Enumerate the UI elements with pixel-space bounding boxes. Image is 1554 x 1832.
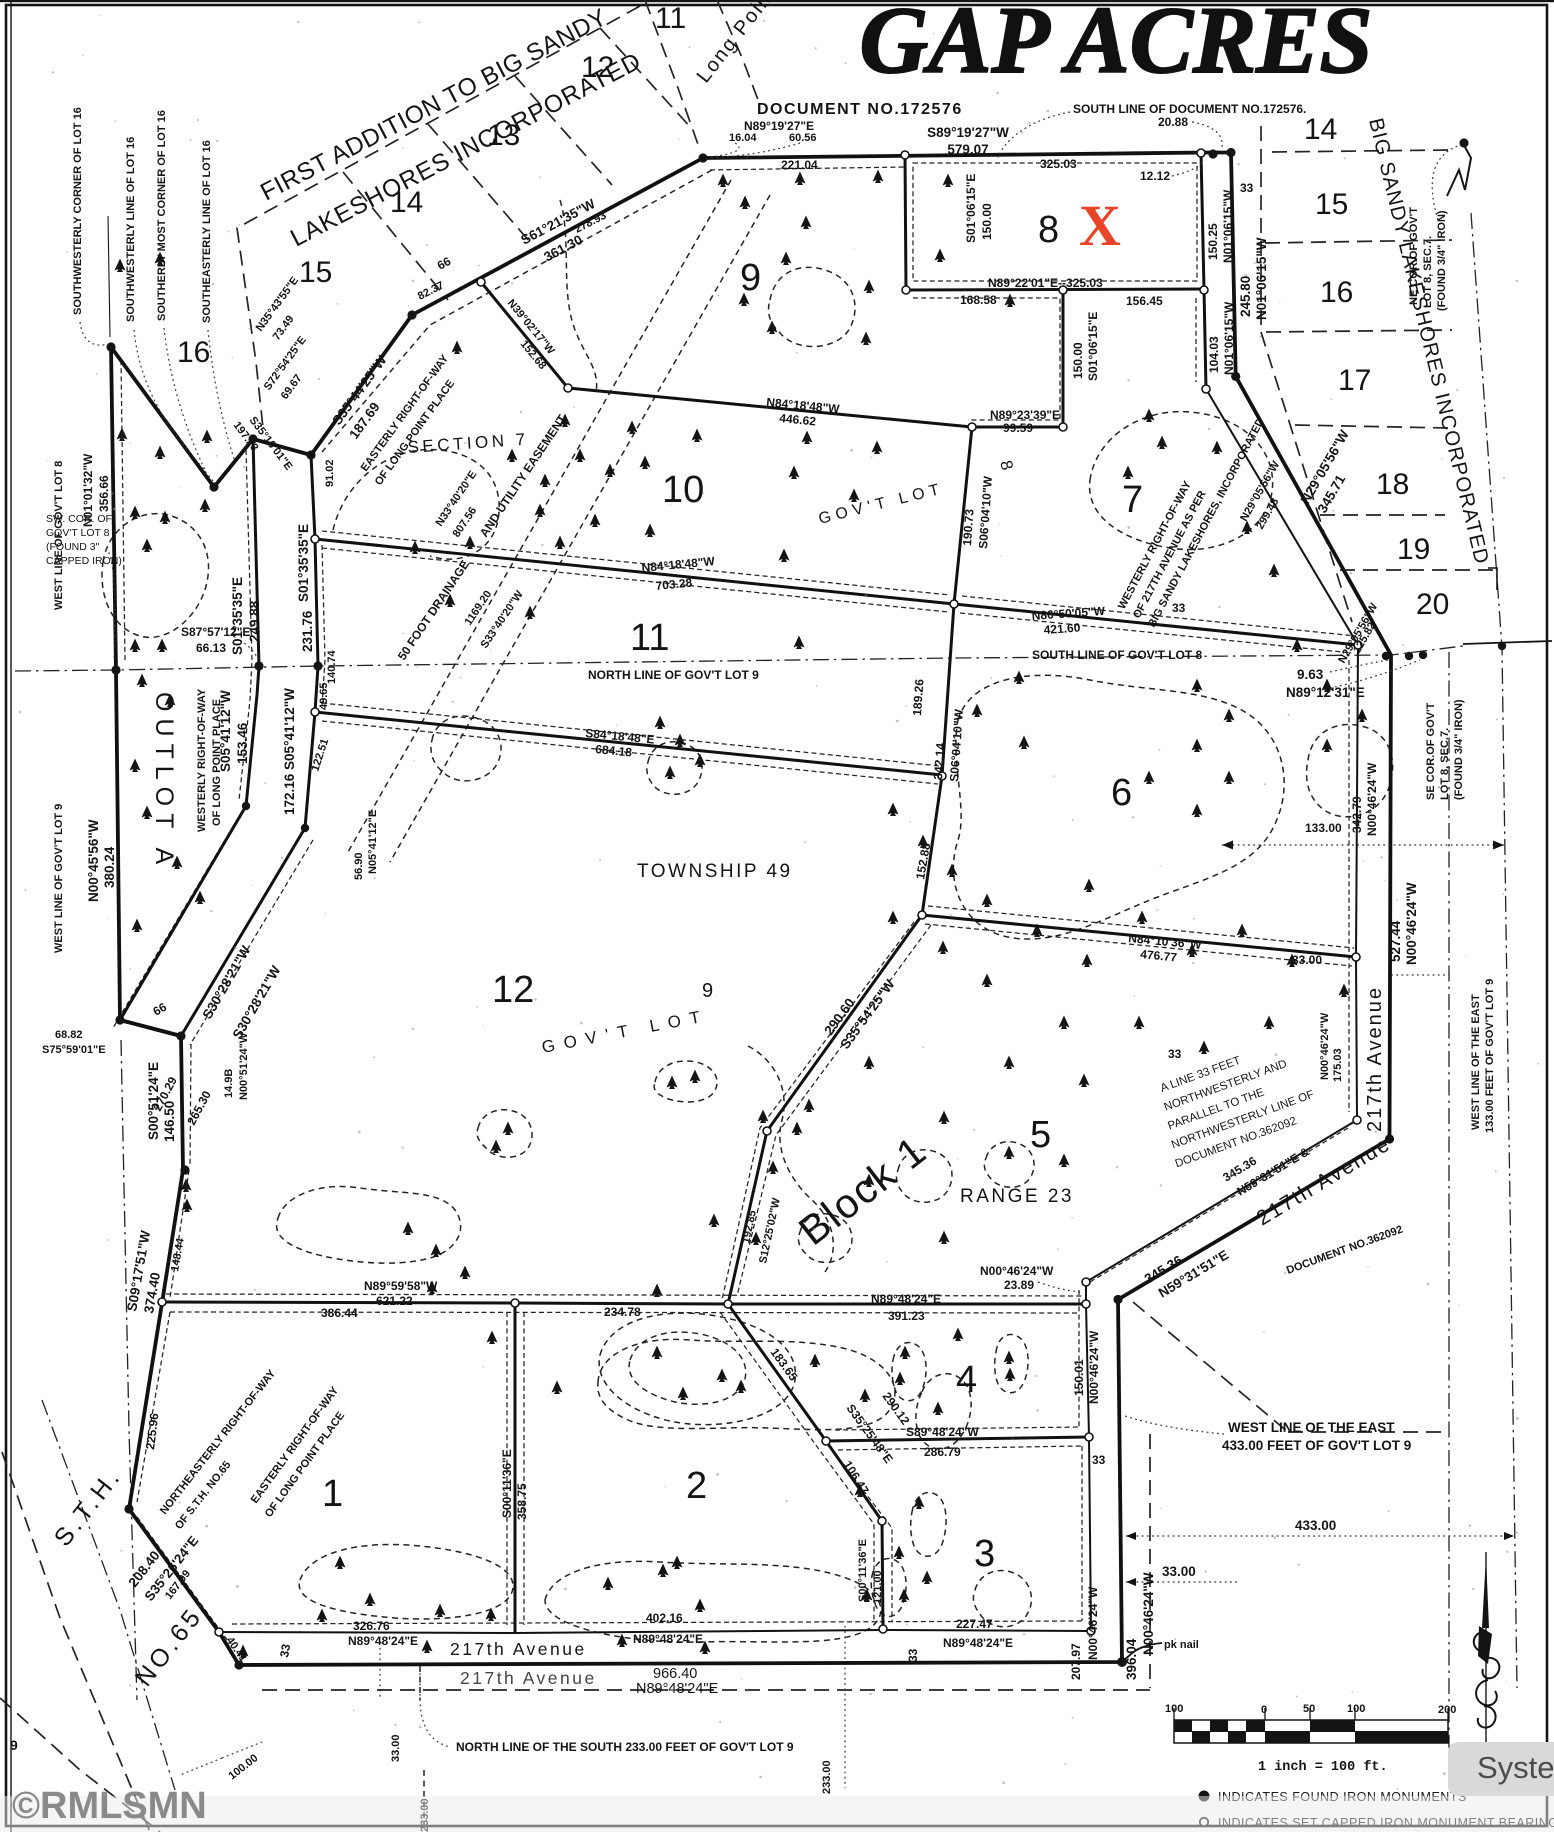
svg-text:146.50: 146.50 [162,1101,177,1142]
svg-text:150.00: 150.00 [1071,342,1085,379]
svg-text:233.00: 233.00 [821,1760,833,1794]
svg-text:9: 9 [10,1737,18,1753]
svg-text:SOUTHWESTERLY LINE OF LOT: SOUTHWESTERLY LINE OF LOT 16 [125,137,137,322]
svg-text:60.56: 60.56 [789,132,817,144]
svg-text:380.24: 380.24 [102,846,117,888]
svg-text:1 inch = 100 ft.: 1 inch = 100 ft. [1258,1760,1388,1775]
svg-text:RANGE 23: RANGE 23 [960,1186,1074,1207]
svg-text:175.03: 175.03 [1332,1048,1344,1082]
svg-text:10: 10 [662,469,704,511]
svg-text:217th Avenue: 217th Avenue [460,1668,597,1688]
svg-text:N89°19'27"E: N89°19'27"E [744,119,814,133]
svg-text:245.80: 245.80 [1238,276,1253,317]
svg-text:N00°46'24"W: N00°46'24"W [1319,1012,1331,1080]
svg-text:133.00 FEET OF GOV'T LOT: 133.00 FEET OF GOV'T LOT 9 [1484,979,1496,1133]
svg-text:WEST LINE OF GOV'T LOT 9: WEST LINE OF GOV'T LOT 9 [53,804,65,953]
svg-text:33: 33 [1092,1453,1106,1467]
svg-text:421.60: 421.60 [1043,620,1081,637]
svg-text:153.46: 153.46 [235,722,250,764]
svg-text:16.04: 16.04 [729,132,757,144]
svg-text:150.25: 150.25 [1206,223,1220,260]
svg-text:56.90: 56.90 [353,852,365,880]
svg-text:N01°06'15"W: N01°06'15"W [1254,237,1269,320]
svg-text:402.16: 402.16 [646,1611,683,1625]
svg-text:14: 14 [390,186,423,219]
svg-text:S01°35'35"E: S01°35'35"E [230,577,245,655]
svg-text:91.02: 91.02 [324,459,336,487]
svg-text:S05°41'12"W: S05°41'12"W [218,690,233,772]
svg-text:N89°48'24"E: N89°48'24"E [943,1636,1013,1650]
svg-text:150.01: 150.01 [1072,1359,1086,1396]
svg-text:23.89: 23.89 [1004,1278,1034,1292]
svg-text:49.65: 49.65 [318,682,330,710]
svg-text:7: 7 [1122,479,1143,521]
svg-text:S00°11'36"E: S00°11'36"E [857,1539,869,1602]
svg-text:SOUTHWESTERLY CORNER OF LOT: SOUTHWESTERLY CORNER OF LOT 16 [72,107,84,315]
svg-text:342.14: 342.14 [931,742,948,780]
svg-text:TOWNSHIP 49: TOWNSHIP 49 [637,861,793,882]
svg-text:33: 33 [277,1643,293,1659]
svg-text:N01°06'15"W: N01°06'15"W [1222,301,1236,375]
svg-text:GAP ACRES: GAP ACRES [860,0,1373,93]
svg-text:WEST LINE OF THE EAST: WEST LINE OF THE EAST [1228,1420,1395,1435]
svg-text:11: 11 [630,617,669,659]
svg-text:N89°48'24"E: N89°48'24"E [633,1632,703,1646]
svg-text:SOUTHERLY MOST CORNER OF L: SOUTHERLY MOST CORNER OF LOT 16 [156,110,168,321]
svg-text:133.00: 133.00 [1305,821,1342,835]
svg-text:189.26: 189.26 [910,678,927,716]
svg-text:6: 6 [1111,772,1132,814]
svg-text:2: 2 [686,1465,707,1507]
svg-text:20: 20 [1416,588,1449,621]
svg-text:326.76: 326.76 [353,1619,390,1633]
svg-text:217th Avenue: 217th Avenue [450,1639,587,1659]
svg-text:20.88: 20.88 [1158,115,1188,129]
svg-text:9: 9 [702,980,713,1002]
svg-text:S01°35'35"E: S01°35'35"E [296,524,311,602]
svg-text:19: 19 [1397,533,1430,566]
svg-text:N00°46'24"W: N00°46'24"W [1365,762,1379,836]
svg-text:286.79: 286.79 [924,1445,961,1459]
svg-text:17: 17 [1338,364,1371,397]
svg-text:33: 33 [1172,601,1186,615]
svg-text:12: 12 [492,969,534,1011]
svg-text:N89°59'58"W: N89°59'58"W [364,1279,438,1293]
svg-text:(FOUND 3": (FOUND 3" [46,541,100,553]
svg-text:4: 4 [956,1359,977,1401]
svg-text:33.00: 33.00 [1292,953,1322,967]
svg-text:391.23: 391.23 [888,1309,925,1323]
svg-text:SE COR.OF GOV'T: SE COR.OF GOV'T [1425,702,1437,800]
svg-text:358.75: 358.75 [515,1483,529,1520]
svg-text:SOUTHEASTERLY LINE OF LOT: SOUTHEASTERLY LINE OF LOT 16 [201,140,213,323]
svg-text:172.16 S05°41'12"W: 172.16 S05°41'12"W [282,688,297,815]
svg-text:227.47: 227.47 [956,1617,993,1631]
svg-text:LOT 8, SEC.7.: LOT 8, SEC.7. [1422,236,1434,308]
svg-text:CAPPED IRON): CAPPED IRON) [46,555,122,567]
svg-text:200: 200 [1438,1704,1456,1716]
svg-text:342.79: 342.79 [1350,796,1364,833]
svg-text:621.22: 621.22 [376,1294,413,1308]
svg-text:234.78: 234.78 [604,1305,641,1319]
svg-text:579.07: 579.07 [947,142,988,157]
svg-text:433.00: 433.00 [1295,1518,1336,1533]
svg-text:N00°46'24"W: N00°46'24"W [1141,1572,1156,1655]
svg-text:33: 33 [1240,181,1254,195]
svg-text:150.00: 150.00 [980,203,994,240]
svg-text:207.97: 207.97 [1069,1643,1083,1680]
svg-text:S01°06'15"E: S01°06'15"E [964,174,978,243]
svg-text:16: 16 [1320,276,1353,309]
svg-text:System: System [1477,1750,1554,1785]
svg-text:N00°46'24"W: N00°46'24"W [1404,882,1419,965]
svg-text:68.82: 68.82 [55,1029,83,1041]
svg-text:33: 33 [906,1648,920,1662]
svg-text:N00°45'56"W: N00°45'56"W [86,819,101,902]
svg-text:S00°51'24"E: S00°51'24"E [146,1062,161,1140]
svg-text:WEST LINE OF THE EAST: WEST LINE OF THE EAST [1470,994,1482,1130]
svg-text:12.12: 12.12 [1140,169,1170,183]
svg-text:5: 5 [1030,1114,1051,1156]
svg-text:140.74: 140.74 [326,649,338,684]
svg-text:NORTH LINE OF THE SOUTH 2: NORTH LINE OF THE SOUTH 233.00 FEET OF G… [456,1740,794,1754]
svg-text:S00°11'36"E: S00°11'36"E [500,1449,514,1518]
svg-text:8: 8 [1038,209,1059,251]
svg-text:N89°12'31"E: N89°12'31"E [1286,685,1365,700]
svg-text:121,00: 121,00 [872,1570,884,1604]
svg-text:N01°06'15"W: N01°06'15"W [1221,189,1235,263]
svg-text:N89°48'24"E: N89°48'24"E [348,1634,418,1648]
svg-text:100: 100 [1347,1703,1365,1715]
svg-text:3: 3 [974,1533,995,1575]
svg-text:0: 0 [1261,1704,1267,1716]
svg-text:11: 11 [655,2,686,35]
svg-text:50: 50 [1303,1703,1315,1715]
svg-text:12: 12 [581,51,614,84]
svg-text:X: X [1079,193,1121,258]
svg-text:14: 14 [1304,113,1337,146]
svg-text:S89°48'24"W: S89°48'24"W [906,1425,979,1439]
svg-text:S01°06'15"E: S01°06'15"E [1086,312,1100,381]
svg-text:217th Avenue: 217th Avenue [1364,986,1386,1132]
svg-text:N89°48'24"E: N89°48'24"E [636,1681,719,1697]
svg-text:N89°22'01"E--325.03: N89°22'01"E--325.03 [988,276,1103,290]
svg-text:DOCUMENT NO.172576: DOCUMENT NO.172576 [757,101,963,118]
svg-text:156.45: 156.45 [1126,294,1163,308]
svg-text:15: 15 [299,256,332,289]
svg-text:N00°46'24"W: N00°46'24"W [1086,1586,1100,1660]
svg-text:N00°51'24"W: N00°51'24"W [238,1032,250,1100]
svg-text:(FOUND 3/4" IRON): (FOUND 3/4" IRON) [1453,699,1465,800]
svg-text:433.00 FEET OF GOV'T LOT: 433.00 FEET OF GOV'T LOT 9 [1222,1438,1411,1453]
svg-text:221.04: 221.04 [781,158,818,172]
svg-text:386.44: 386.44 [321,1306,358,1320]
svg-text:356.66: 356.66 [97,475,111,512]
svg-text:S75°59'01"E: S75°59'01"E [42,1044,106,1056]
svg-text:SW. COR. OF: SW. COR. OF [46,513,112,525]
svg-text:LOT 8, SEC.7.: LOT 8, SEC.7. [1439,728,1451,800]
svg-text:N05°41'12"E: N05°41'12"E [367,810,379,874]
svg-text:18: 18 [1376,468,1409,501]
svg-text:99.59: 99.59 [1003,421,1033,435]
svg-text:OUTLOT A: OUTLOT A [150,692,178,871]
svg-text:66.13: 66.13 [196,641,226,655]
svg-text:104.03: 104.03 [1207,336,1221,373]
svg-text:NE COR.OF GOV'T: NE COR.OF GOV'T [1408,207,1420,305]
svg-text:pk nail: pk nail [1164,1639,1199,1651]
svg-text:100: 100 [1165,1703,1183,1715]
svg-text:9: 9 [740,257,761,299]
svg-text:966.40: 966.40 [653,1666,697,1682]
svg-text:GOV'T LOT 8: GOV'T LOT 8 [46,527,110,539]
svg-text:168.58: 168.58 [960,293,997,307]
svg-text:N89°23'39"E: N89°23'39"E [990,408,1060,422]
svg-text:NORTH LINE OF GOV'T LOT 9: NORTH LINE OF GOV'T LOT 9 [588,668,759,682]
svg-text:SOUTH LINE OF GOV'T LOT 8: SOUTH LINE OF GOV'T LOT 8 [1032,648,1203,662]
svg-text:231.76: 231.76 [300,610,315,652]
svg-text:33.00: 33.00 [1162,1564,1196,1579]
svg-text:190.73: 190.73 [960,508,977,546]
svg-text:9.63: 9.63 [1297,667,1324,682]
svg-text:325.03: 325.03 [1040,157,1077,171]
svg-text:15: 15 [1315,188,1348,221]
svg-text:13: 13 [487,119,520,152]
svg-text:N00°46'24"W: N00°46'24"W [980,1264,1054,1278]
svg-text:1: 1 [322,1473,343,1515]
svg-text:14.9B: 14.9B [223,1069,235,1098]
svg-text:33.00: 33.00 [390,1734,402,1762]
svg-text:WESTERLY RIGHT-OF-WAY: WESTERLY RIGHT-OF-WAY [196,688,208,832]
svg-text:527.44: 527.44 [1388,920,1403,962]
svg-text:396.04: 396.04 [1124,1638,1139,1680]
svg-text:33: 33 [1168,1047,1182,1061]
svg-text:S89°19'27"W: S89°19'27"W [927,125,1009,140]
svg-text:©RMLSMN: ©RMLSMN [12,1785,207,1827]
svg-text:S87°57'12"E: S87°57'12"E [181,625,250,639]
svg-text:(FOUND 3/4" IRON): (FOUND 3/4" IRON) [1436,210,1448,311]
svg-text:N00°46'24"W: N00°46'24"W [1087,1330,1101,1404]
svg-text:16: 16 [177,336,210,369]
svg-text:SOUTH LINE OF DOCUMENT NO.: SOUTH LINE OF DOCUMENT NO.172576. [1073,102,1306,116]
svg-text:N89°48'24"E: N89°48'24"E [871,1292,941,1306]
